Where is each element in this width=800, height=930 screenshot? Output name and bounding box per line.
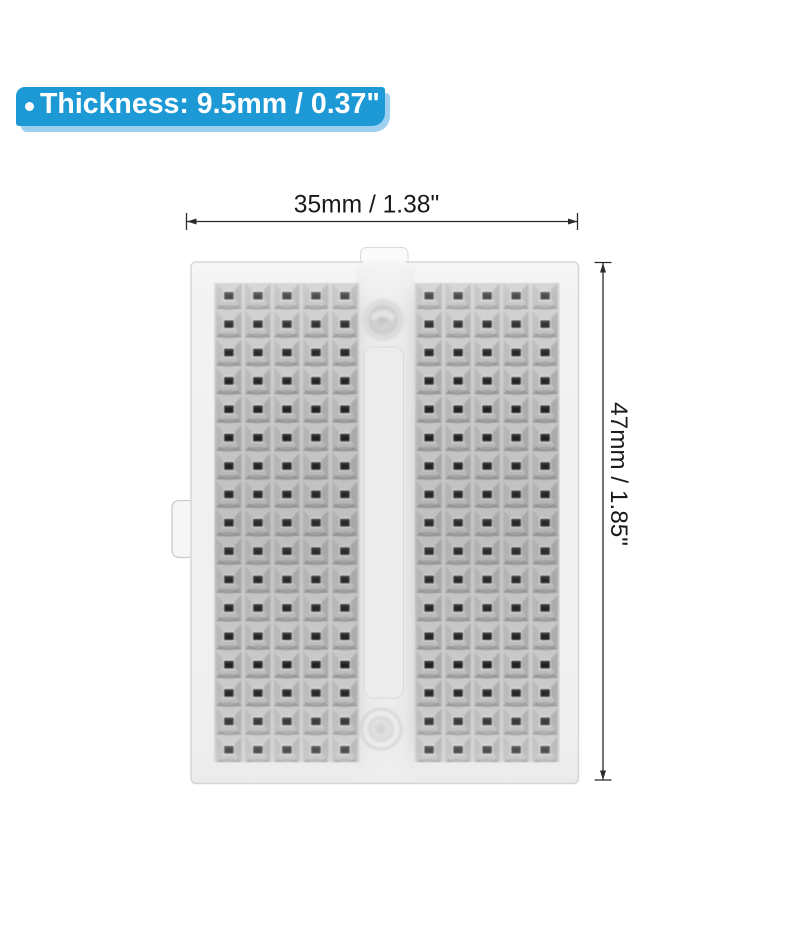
- svg-text:47mm / 1.85": 47mm / 1.85": [605, 402, 632, 546]
- svg-text:35mm / 1.38": 35mm / 1.38": [294, 192, 439, 219]
